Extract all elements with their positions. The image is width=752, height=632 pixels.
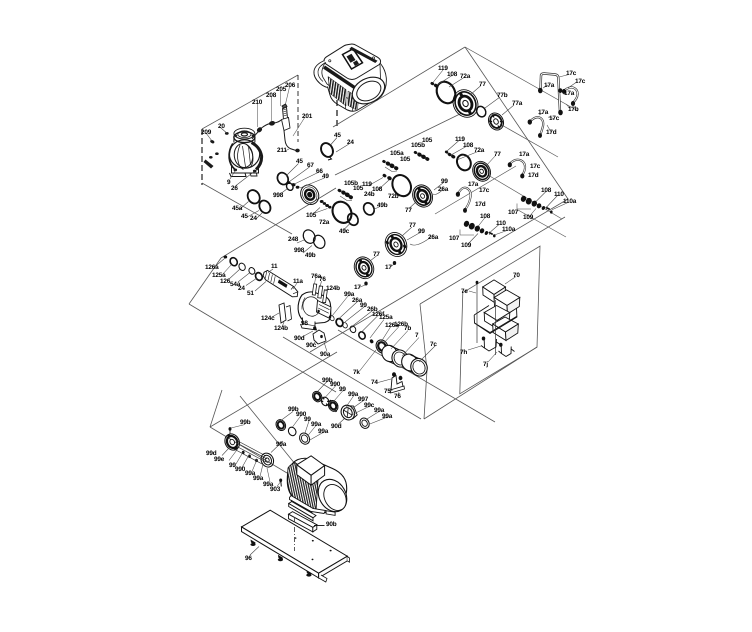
svg-text:24: 24: [347, 139, 354, 146]
svg-text:109: 109: [523, 214, 534, 221]
svg-text:17b: 17b: [568, 106, 579, 113]
svg-text:7j: 7j: [483, 361, 488, 368]
svg-text:98: 98: [301, 320, 308, 327]
svg-text:998: 998: [273, 192, 284, 199]
svg-text:77: 77: [409, 222, 416, 229]
svg-text:17a: 17a: [468, 181, 479, 188]
svg-text:17c: 17c: [566, 70, 577, 77]
svg-text:17c: 17c: [530, 163, 541, 170]
svg-text:45: 45: [241, 213, 248, 220]
svg-text:201: 201: [302, 113, 313, 120]
svg-text:77b: 77b: [497, 92, 508, 99]
svg-text:24: 24: [250, 215, 257, 222]
svg-text:77: 77: [405, 207, 412, 214]
svg-text:77a: 77a: [512, 100, 523, 107]
svg-text:125a: 125a: [379, 314, 393, 321]
svg-text:77: 77: [373, 251, 380, 258]
svg-text:126a: 126a: [205, 264, 219, 271]
svg-text:90d: 90d: [294, 335, 305, 342]
svg-text:99: 99: [418, 228, 425, 235]
svg-text:110: 110: [554, 191, 564, 198]
svg-text:7e: 7e: [461, 288, 468, 295]
svg-text:17c: 17c: [479, 187, 490, 194]
svg-text:7c: 7c: [430, 341, 437, 348]
svg-text:45a: 45a: [232, 205, 243, 212]
svg-text:108: 108: [463, 142, 474, 149]
svg-text:124c: 124c: [261, 315, 275, 322]
svg-text:7k: 7k: [353, 369, 360, 376]
svg-text:75: 75: [384, 388, 391, 395]
svg-text:903: 903: [270, 486, 281, 493]
svg-text:105: 105: [400, 156, 411, 163]
svg-text:110a: 110a: [563, 198, 577, 205]
svg-text:109: 109: [461, 242, 472, 249]
svg-text:99a: 99a: [276, 441, 287, 448]
svg-text:74: 74: [371, 379, 378, 386]
svg-text:108: 108: [541, 187, 552, 194]
svg-text:77: 77: [479, 81, 486, 88]
svg-text:76: 76: [319, 276, 326, 283]
svg-text:90d: 90d: [331, 423, 342, 430]
svg-text:24: 24: [238, 285, 245, 292]
svg-text:99: 99: [339, 386, 346, 393]
svg-text:119: 119: [362, 181, 372, 188]
svg-text:11a: 11a: [293, 278, 303, 285]
svg-text:26: 26: [231, 185, 238, 192]
svg-text:90b: 90b: [326, 521, 337, 528]
svg-text:107: 107: [449, 235, 460, 242]
svg-text:248: 248: [288, 236, 299, 243]
svg-text:76: 76: [394, 393, 401, 400]
svg-text:49c: 49c: [339, 228, 350, 235]
svg-text:17d: 17d: [546, 129, 557, 136]
svg-text:11: 11: [271, 263, 278, 270]
svg-text:90c: 90c: [306, 342, 317, 349]
svg-text:72a: 72a: [319, 219, 330, 226]
svg-text:17a: 17a: [564, 90, 575, 97]
svg-text:110a: 110a: [502, 226, 516, 233]
svg-text:124b: 124b: [274, 325, 288, 332]
svg-text:7h: 7h: [460, 349, 467, 356]
svg-text:99b: 99b: [240, 419, 251, 426]
svg-text:45: 45: [296, 158, 303, 165]
svg-text:17: 17: [354, 284, 361, 291]
svg-text:108: 108: [480, 213, 491, 220]
svg-text:70: 70: [513, 272, 520, 279]
svg-text:107: 107: [508, 209, 519, 216]
svg-text:17a: 17a: [544, 82, 555, 89]
svg-text:96: 96: [245, 555, 252, 562]
svg-text:67: 67: [307, 162, 314, 169]
svg-text:208: 208: [266, 92, 277, 99]
svg-text:77: 77: [494, 151, 501, 158]
svg-text:209: 209: [201, 129, 212, 136]
svg-text:72b: 72b: [388, 193, 399, 200]
svg-text:17c: 17c: [549, 115, 560, 122]
svg-text:17d: 17d: [528, 172, 539, 179]
svg-text:49b: 49b: [305, 252, 316, 259]
svg-text:49: 49: [322, 173, 329, 180]
svg-text:124b: 124b: [326, 285, 340, 292]
svg-text:99: 99: [441, 178, 448, 185]
svg-text:17a: 17a: [538, 109, 549, 116]
svg-text:51: 51: [247, 290, 254, 297]
svg-text:99a: 99a: [382, 413, 393, 420]
svg-text:49b: 49b: [377, 202, 388, 209]
svg-text:99e: 99e: [214, 456, 225, 463]
svg-text:45: 45: [334, 132, 341, 139]
svg-text:26a: 26a: [428, 234, 439, 241]
svg-text:7b: 7b: [404, 325, 411, 332]
svg-text:99a: 99a: [318, 428, 329, 435]
svg-text:17a: 17a: [519, 151, 530, 158]
svg-text:90a: 90a: [320, 351, 331, 358]
svg-text:211: 211: [277, 147, 287, 154]
svg-text:72a: 72a: [460, 73, 471, 80]
svg-text:105: 105: [422, 137, 433, 144]
svg-text:72a: 72a: [474, 147, 485, 154]
svg-text:26a: 26a: [438, 186, 449, 193]
svg-text:20: 20: [218, 123, 225, 130]
svg-text:108: 108: [447, 71, 458, 78]
svg-text:99a: 99a: [311, 421, 322, 428]
svg-text:17c: 17c: [575, 78, 586, 85]
svg-text:24b: 24b: [364, 191, 375, 198]
svg-text:17: 17: [385, 264, 392, 271]
svg-text:17d: 17d: [475, 201, 486, 208]
svg-text:206: 206: [285, 82, 296, 89]
svg-text:105: 105: [306, 212, 317, 219]
svg-text:210: 210: [252, 99, 263, 106]
